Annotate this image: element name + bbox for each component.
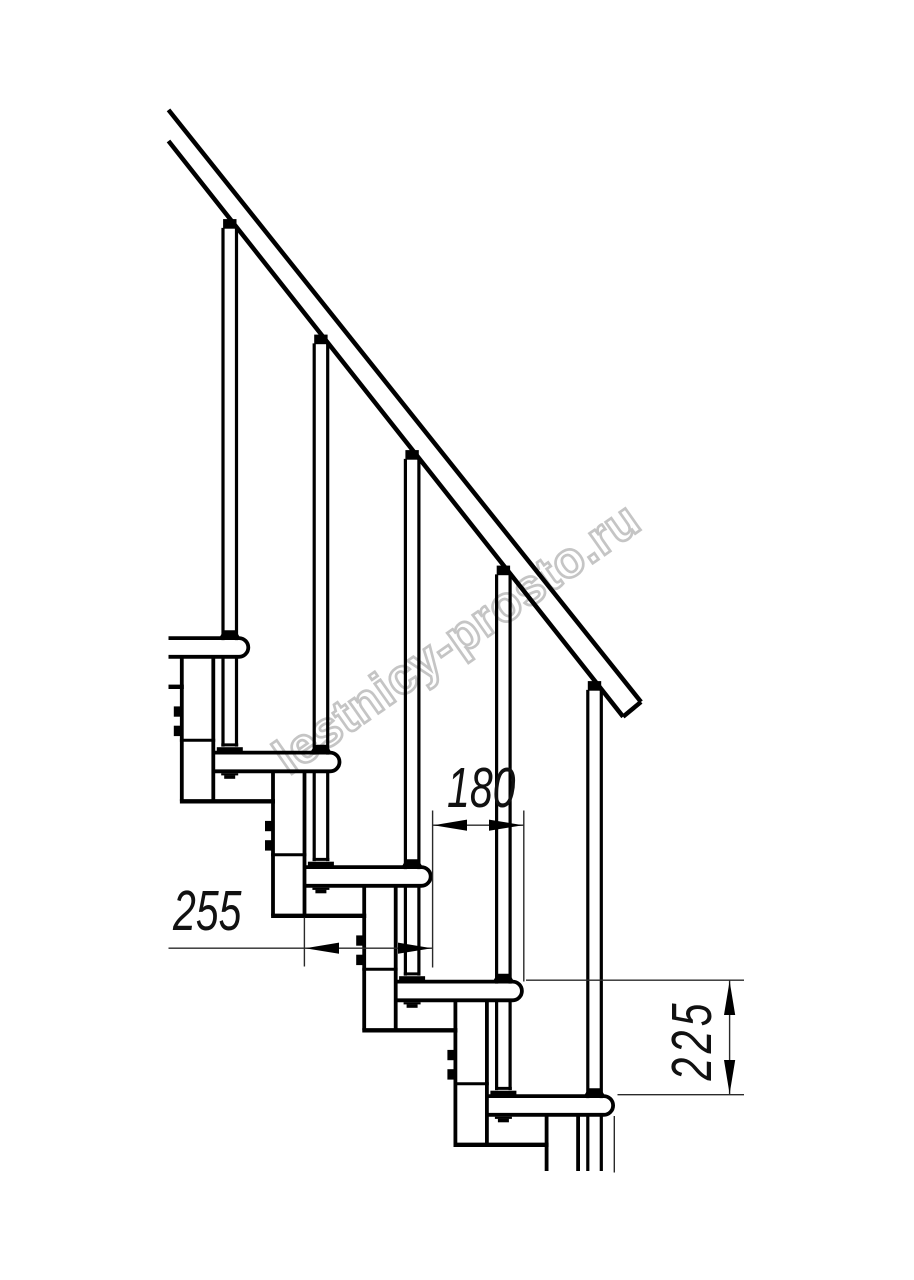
svg-text:255: 255 [172,878,242,942]
svg-text:180: 180 [447,755,516,819]
svg-text:225: 225 [659,999,723,1081]
